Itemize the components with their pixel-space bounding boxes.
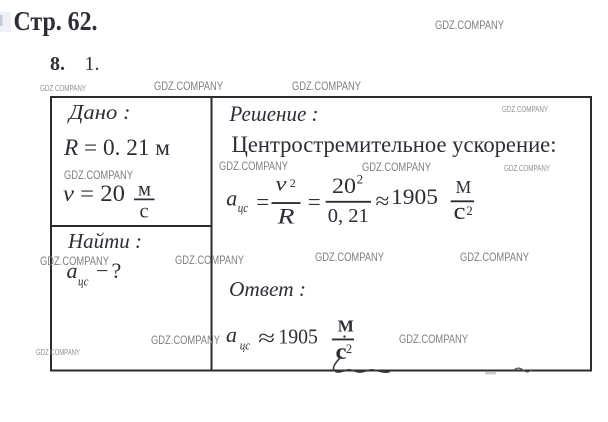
svg-text:GDZ.COMPANY: GDZ.COMPANY — [504, 163, 550, 173]
svg-text:v: v — [276, 174, 287, 196]
svg-text:Центростремительное ускорение:: Центростремительное ускорение: — [232, 132, 557, 158]
svg-text:≈: ≈ — [375, 189, 389, 214]
svg-text:=: = — [256, 190, 269, 215]
svg-text:цс: цс — [238, 200, 249, 215]
svg-text:2: 2 — [346, 342, 352, 356]
svg-text:≈: ≈ — [258, 326, 275, 351]
svg-text:GDZ.COMPANY: GDZ.COMPANY — [399, 334, 468, 346]
svg-text:GDZ.COMPANY: GDZ.COMPANY — [460, 252, 529, 264]
svg-text:20: 20 — [332, 173, 356, 198]
svg-text:с: с — [454, 199, 466, 225]
svg-text:GDZ.COMPANY: GDZ.COMPANY — [151, 335, 220, 347]
svg-text:с: с — [140, 201, 149, 223]
svg-text:=: = — [308, 190, 321, 215]
svg-text:R: R — [276, 204, 295, 229]
svg-text:GDZ.COMPANY: GDZ.COMPANY — [40, 256, 109, 268]
svg-text:1905: 1905 — [391, 184, 438, 209]
svg-text:цс: цс — [240, 338, 251, 353]
svg-text:8.: 8. — [50, 53, 65, 75]
svg-text:?: ? — [112, 258, 122, 283]
svg-text:2: 2 — [466, 203, 473, 218]
svg-text:2: 2 — [290, 176, 296, 190]
svg-text:a: a — [226, 186, 237, 211]
svg-text:Ответ :: Ответ : — [229, 277, 306, 301]
svg-text:Решение :: Решение : — [229, 101, 319, 126]
svg-text:R = 0. 21 м: R = 0. 21 м — [63, 135, 170, 160]
svg-text:Дано :: Дано : — [67, 100, 131, 124]
svg-text:Стр. 62.: Стр. 62. — [14, 6, 98, 36]
svg-text:GDZ.COMPANY: GDZ.COMPANY — [502, 104, 548, 114]
svg-text:1905: 1905 — [278, 325, 318, 349]
svg-text:М: М — [338, 317, 354, 336]
svg-text:v = 20: v = 20 — [63, 181, 125, 206]
svg-text:Найти :: Найти : — [67, 229, 142, 253]
svg-text:a: a — [226, 322, 237, 347]
svg-text:GDZ.COMPANY: GDZ.COMPANY — [154, 81, 223, 93]
svg-text:2: 2 — [357, 172, 364, 187]
svg-text:GDZ.COMPANY: GDZ.COMPANY — [435, 20, 504, 32]
svg-text:1.: 1. — [85, 53, 100, 75]
svg-text:0, 21: 0, 21 — [328, 205, 369, 227]
svg-text:GDZ.COMPANY: GDZ.COMPANY — [292, 81, 361, 93]
svg-text:GDZ.COMPANY: GDZ.COMPANY — [362, 162, 431, 174]
svg-text:М: М — [456, 177, 472, 197]
svg-text:GDZ COMPANY: GDZ COMPANY — [40, 83, 86, 93]
svg-text:м: м — [138, 179, 151, 201]
svg-text:GDZ.COMPANY: GDZ.COMPANY — [315, 252, 384, 264]
svg-text:GDZ.COMPANY: GDZ.COMPANY — [219, 161, 288, 173]
svg-text:цс: цс — [78, 274, 89, 289]
svg-text:GDZ.COMPANY: GDZ.COMPANY — [175, 255, 244, 267]
svg-text:GDZ COMPANY: GDZ COMPANY — [36, 347, 80, 357]
